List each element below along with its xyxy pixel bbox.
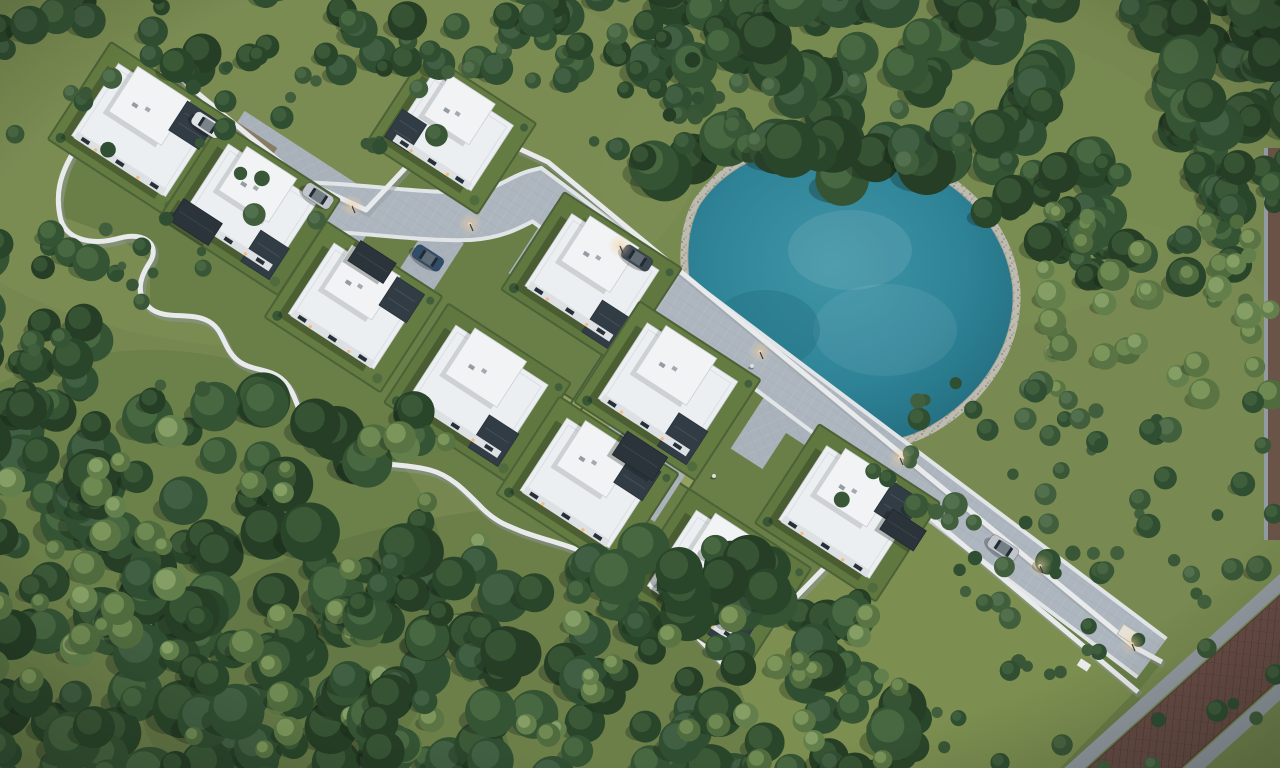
- vignette: [0, 0, 1280, 768]
- layer-atmosphere: [0, 0, 1280, 768]
- aerial-render: [0, 0, 1280, 768]
- scene-svg: [0, 0, 1280, 768]
